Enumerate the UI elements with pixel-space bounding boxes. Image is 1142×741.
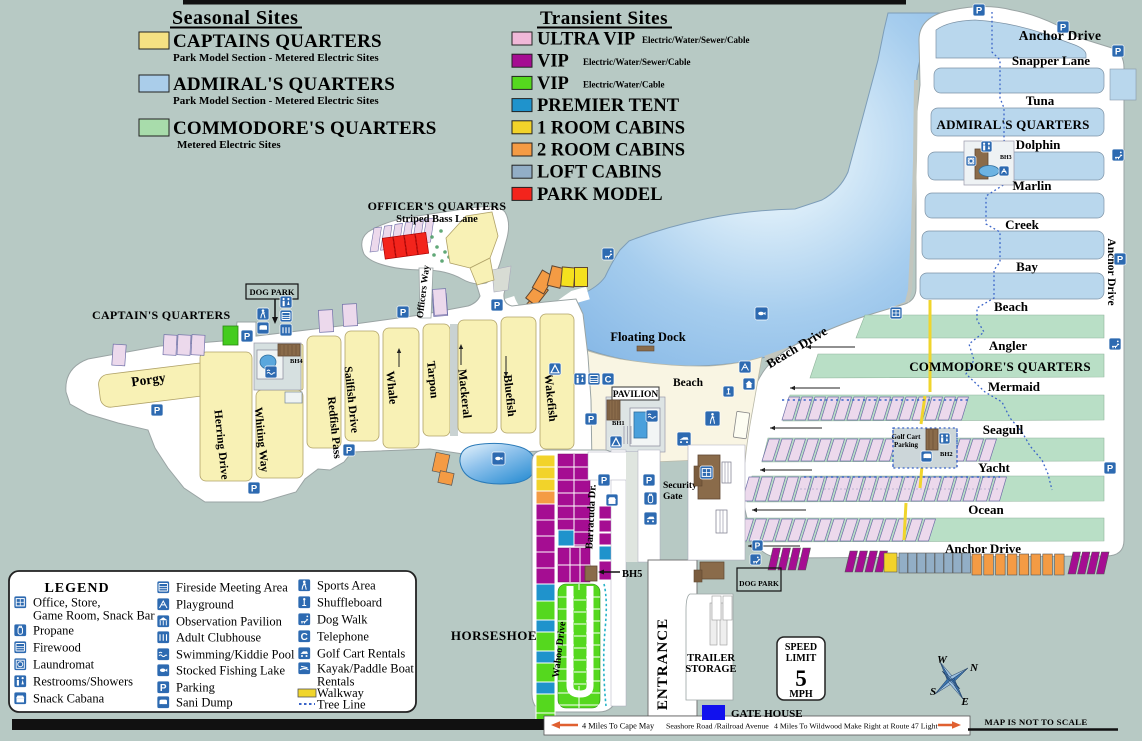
svg-text:P: P <box>400 308 407 319</box>
svg-text:BH3: BH3 <box>1000 155 1012 161</box>
svg-text:Laundromat: Laundromat <box>33 658 95 672</box>
svg-text:Sports Area: Sports Area <box>317 579 376 593</box>
svg-text:Floating Dock: Floating Dock <box>610 330 685 344</box>
svg-text:C: C <box>605 375 612 386</box>
svg-text:W: W <box>937 654 948 666</box>
svg-text:Tuna: Tuna <box>1026 93 1055 108</box>
svg-text:ENTRANCE: ENTRANCE <box>655 618 671 710</box>
svg-text:VIP: VIP <box>537 52 569 72</box>
svg-text:P: P <box>601 476 608 487</box>
svg-text:MPH: MPH <box>789 689 813 700</box>
svg-text:Metered Electric Sites: Metered Electric Sites <box>177 139 281 151</box>
svg-text:GATE HOUSE: GATE HOUSE <box>731 708 803 720</box>
svg-text:Electric/Water/Cable: Electric/Water/Cable <box>583 79 664 89</box>
svg-text:P: P <box>244 332 251 343</box>
svg-text:4 Miles To Cape May: 4 Miles To Cape May <box>582 722 655 731</box>
svg-text:Gate: Gate <box>663 492 683 502</box>
svg-text:Seagull: Seagull <box>983 422 1024 437</box>
svg-text:2 ROOM CABINS: 2 ROOM CABINS <box>537 141 685 161</box>
svg-text:P: P <box>346 446 353 457</box>
svg-text:OFFICER'S QUARTERS: OFFICER'S QUARTERS <box>368 199 507 213</box>
svg-text:P: P <box>1115 47 1122 58</box>
svg-text:Kayak/Paddle Boat: Kayak/Paddle Boat <box>317 662 414 676</box>
svg-text:Playground: Playground <box>176 598 234 612</box>
svg-text:Game Room, Snack Bar: Game Room, Snack Bar <box>33 609 155 623</box>
svg-text:P: P <box>494 301 501 312</box>
svg-text:Parking: Parking <box>176 681 216 695</box>
svg-text:Striped Bass Lane: Striped Bass Lane <box>396 214 478 225</box>
svg-text:Snack Cabana: Snack Cabana <box>33 692 105 706</box>
svg-text:CAPTAINS QUARTERS: CAPTAINS QUARTERS <box>173 31 382 52</box>
svg-text:Beach: Beach <box>673 377 704 389</box>
svg-text:Tree Line: Tree Line <box>317 698 366 712</box>
svg-text:Propane: Propane <box>33 624 74 638</box>
svg-text:S: S <box>930 686 936 698</box>
svg-text:Mermaid: Mermaid <box>988 379 1041 394</box>
svg-text:ULTRA VIP: ULTRA VIP <box>537 30 635 50</box>
svg-text:Yacht: Yacht <box>978 460 1010 475</box>
svg-text:VIP: VIP <box>537 74 569 94</box>
svg-text:Fireside Meeting Area: Fireside Meeting Area <box>176 581 288 595</box>
svg-text:Electric/Water/Sewer/Cable: Electric/Water/Sewer/Cable <box>583 57 690 67</box>
svg-text:P: P <box>588 415 595 426</box>
svg-text:C: C <box>301 632 308 643</box>
svg-text:Golf Cart: Golf Cart <box>892 433 922 441</box>
svg-text:1 ROOM CABINS: 1 ROOM CABINS <box>537 118 685 138</box>
svg-text:4 Miles To Wildwood Make Right: 4 Miles To Wildwood Make Right at Route … <box>774 722 938 731</box>
svg-text:DOG PARK: DOG PARK <box>250 287 295 297</box>
svg-text:N: N <box>969 662 979 674</box>
svg-text:ADMIRAL'S QUARTERS: ADMIRAL'S QUARTERS <box>936 117 1089 132</box>
svg-text:Adult Clubhouse: Adult Clubhouse <box>176 631 262 645</box>
svg-text:ADMIRAL'S QUARTERS: ADMIRAL'S QUARTERS <box>173 74 395 95</box>
svg-text:P: P <box>976 6 983 17</box>
svg-text:Angler: Angler <box>989 338 1028 353</box>
svg-text:Park Model Section - Metered E: Park Model Section - Metered Electric Si… <box>173 95 379 107</box>
svg-text:Ocean: Ocean <box>968 502 1004 517</box>
svg-text:COMMODORE'S QUARTERS: COMMODORE'S QUARTERS <box>909 359 1091 374</box>
svg-text:Anchor Drive: Anchor Drive <box>1105 238 1117 305</box>
svg-text:Golf Cart Rentals: Golf Cart Rentals <box>317 647 405 661</box>
svg-text:BH1: BH1 <box>612 420 625 427</box>
svg-text:Seasonal Sites: Seasonal Sites <box>172 7 298 29</box>
svg-text:Swimming/Kiddie Pool: Swimming/Kiddie Pool <box>176 648 295 662</box>
svg-text:Transient Sites: Transient Sites <box>540 8 668 29</box>
svg-text:LIMIT: LIMIT <box>786 653 817 664</box>
svg-text:STORAGE: STORAGE <box>685 664 736 675</box>
svg-text:Beach: Beach <box>994 299 1029 314</box>
svg-text:SPEED: SPEED <box>785 642 817 653</box>
svg-text:BH2: BH2 <box>940 451 953 458</box>
svg-text:P: P <box>1060 23 1067 34</box>
svg-text:5: 5 <box>795 666 807 691</box>
svg-text:Observation Pavilion: Observation Pavilion <box>176 615 283 629</box>
svg-text:P: P <box>646 476 653 487</box>
svg-text:Snapper Lane: Snapper Lane <box>1012 53 1090 68</box>
svg-text:Restrooms/Showers: Restrooms/Showers <box>33 675 133 689</box>
svg-text:P: P <box>755 541 761 551</box>
svg-text:P: P <box>1107 464 1114 475</box>
svg-text:Bay: Bay <box>1016 259 1038 274</box>
svg-text:Marlin: Marlin <box>1013 178 1053 193</box>
svg-text:Security: Security <box>663 481 697 491</box>
svg-text:MAP IS NOT TO SCALE: MAP IS NOT TO SCALE <box>985 717 1088 727</box>
svg-text:Office, Store,: Office, Store, <box>33 596 100 610</box>
svg-text:Dog Walk: Dog Walk <box>317 613 368 627</box>
svg-text:Anchor Drive: Anchor Drive <box>945 541 1021 556</box>
svg-text:PAVILION: PAVILION <box>613 390 659 400</box>
svg-text:BH4: BH4 <box>290 358 303 365</box>
svg-text:Shuffleboard: Shuffleboard <box>317 596 383 610</box>
svg-text:LOFT CABINS: LOFT CABINS <box>537 163 662 183</box>
svg-text:BH5: BH5 <box>622 569 642 580</box>
svg-text:LEGEND: LEGEND <box>44 581 109 596</box>
svg-text:P: P <box>1117 255 1124 266</box>
svg-text:TRAILER: TRAILER <box>687 653 735 664</box>
svg-text:Stocked Fishing Lake: Stocked Fishing Lake <box>176 664 285 678</box>
svg-text:DOG PARK: DOG PARK <box>739 579 779 588</box>
svg-text:P: P <box>154 406 161 417</box>
svg-text:Creek: Creek <box>1005 217 1039 232</box>
svg-text:Dolphin: Dolphin <box>1016 137 1062 152</box>
svg-text:Parking: Parking <box>894 441 919 449</box>
svg-text:E: E <box>960 696 968 708</box>
svg-text:Telephone: Telephone <box>317 630 369 644</box>
svg-text:PARK MODEL: PARK MODEL <box>537 185 663 205</box>
svg-text:CAPTAIN'S QUARTERS: CAPTAIN'S QUARTERS <box>92 308 230 322</box>
svg-text:Park Model Section - Metered E: Park Model Section - Metered Electric Si… <box>173 52 379 64</box>
svg-text:HORSESHOE: HORSESHOE <box>451 628 537 643</box>
svg-text:P: P <box>251 484 258 495</box>
svg-text:Firewood: Firewood <box>33 641 82 655</box>
svg-text:Electric/Water/Sewer/Cable: Electric/Water/Sewer/Cable <box>642 35 749 45</box>
svg-text:COMMODORE'S QUARTERS: COMMODORE'S QUARTERS <box>173 118 437 139</box>
svg-text:PREMIER TENT: PREMIER TENT <box>537 96 680 116</box>
svg-text:P: P <box>160 683 167 694</box>
svg-text:Seashore Road /Railroad Avenue: Seashore Road /Railroad Avenue <box>666 722 769 731</box>
svg-text:Sani Dump: Sani Dump <box>176 696 233 710</box>
